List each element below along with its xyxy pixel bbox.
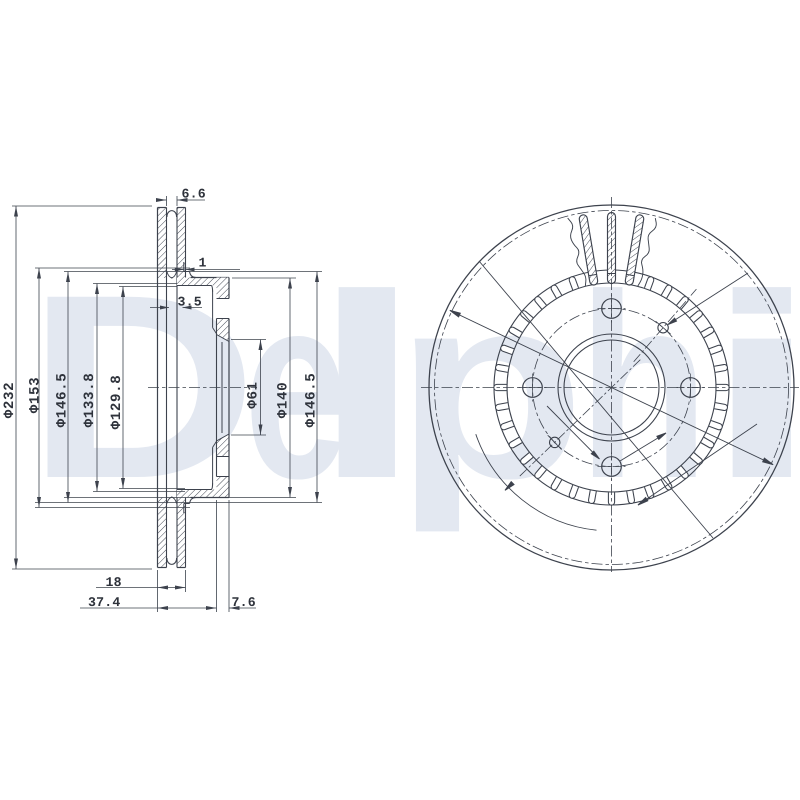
svg-text:Φ146.5: Φ146.5 [303, 373, 319, 428]
svg-text:Φ153: Φ153 [27, 377, 43, 413]
svg-text:Φ140: Φ140 [275, 382, 291, 418]
svg-text:Φ61: Φ61 [245, 381, 261, 408]
svg-text:Φ133.8: Φ133.8 [82, 373, 98, 428]
svg-text:37.4: 37.4 [88, 595, 120, 610]
svg-text:Φ232: Φ232 [2, 382, 18, 418]
svg-text:6.6: 6.6 [181, 187, 205, 202]
svg-text:7.6: 7.6 [231, 595, 255, 610]
svg-text:1: 1 [198, 256, 206, 271]
svg-text:3.5: 3.5 [177, 295, 201, 310]
svg-text:Φ146.5: Φ146.5 [54, 373, 70, 428]
svg-text:Φ129.8: Φ129.8 [109, 375, 125, 430]
svg-text:18: 18 [105, 575, 121, 590]
